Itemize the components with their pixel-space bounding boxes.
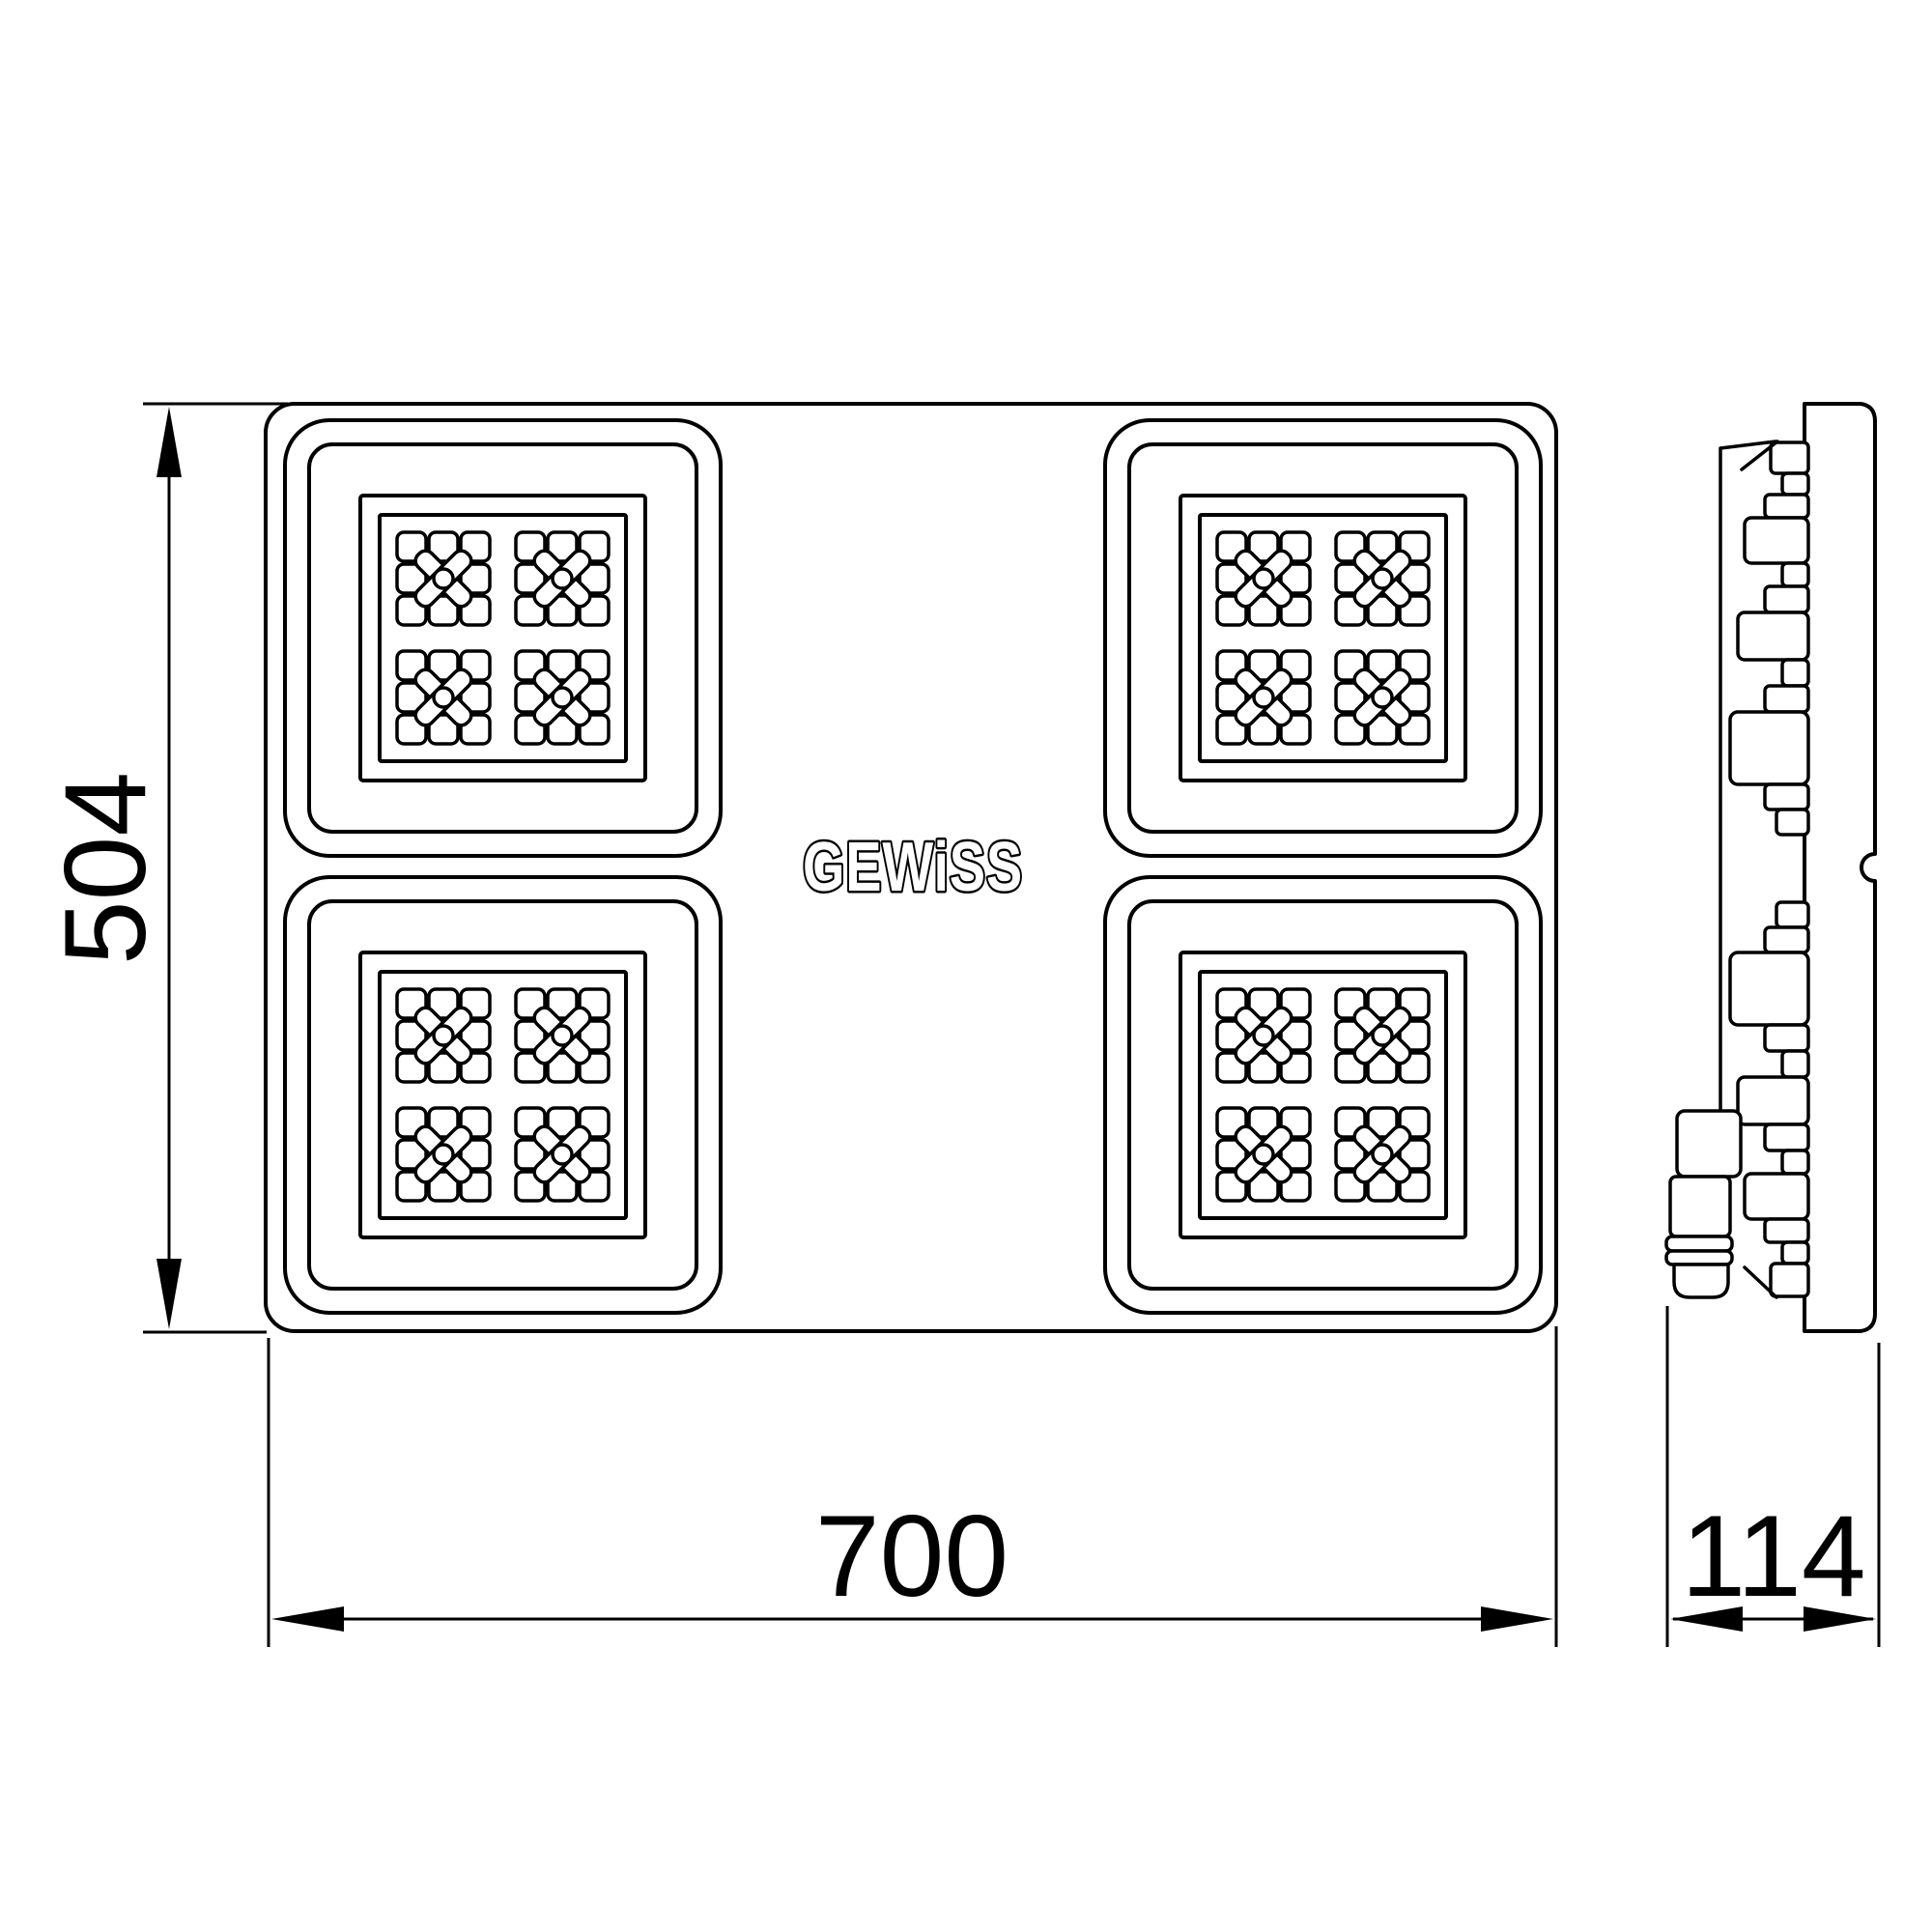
- front-view: GEWiSS: [266, 404, 1556, 1331]
- led-panel-bottom-left: [285, 877, 721, 1313]
- technical-drawing-page: GEWiSS: [0, 0, 1932, 1932]
- led-panel-bottom-right: [1105, 877, 1541, 1313]
- brand-logo: GEWiSS: [803, 829, 1023, 906]
- floodlight-dimension-drawing: GEWiSS: [0, 0, 1932, 1932]
- led-panel-top-left: [285, 420, 721, 856]
- width-dimension-label: 700: [815, 1492, 1009, 1621]
- height-dimension-label: 504: [41, 772, 170, 965]
- depth-dimension-label: 114: [1681, 1492, 1865, 1621]
- led-panel-top-right: [1105, 420, 1541, 856]
- cable-gland: [1666, 1111, 1741, 1297]
